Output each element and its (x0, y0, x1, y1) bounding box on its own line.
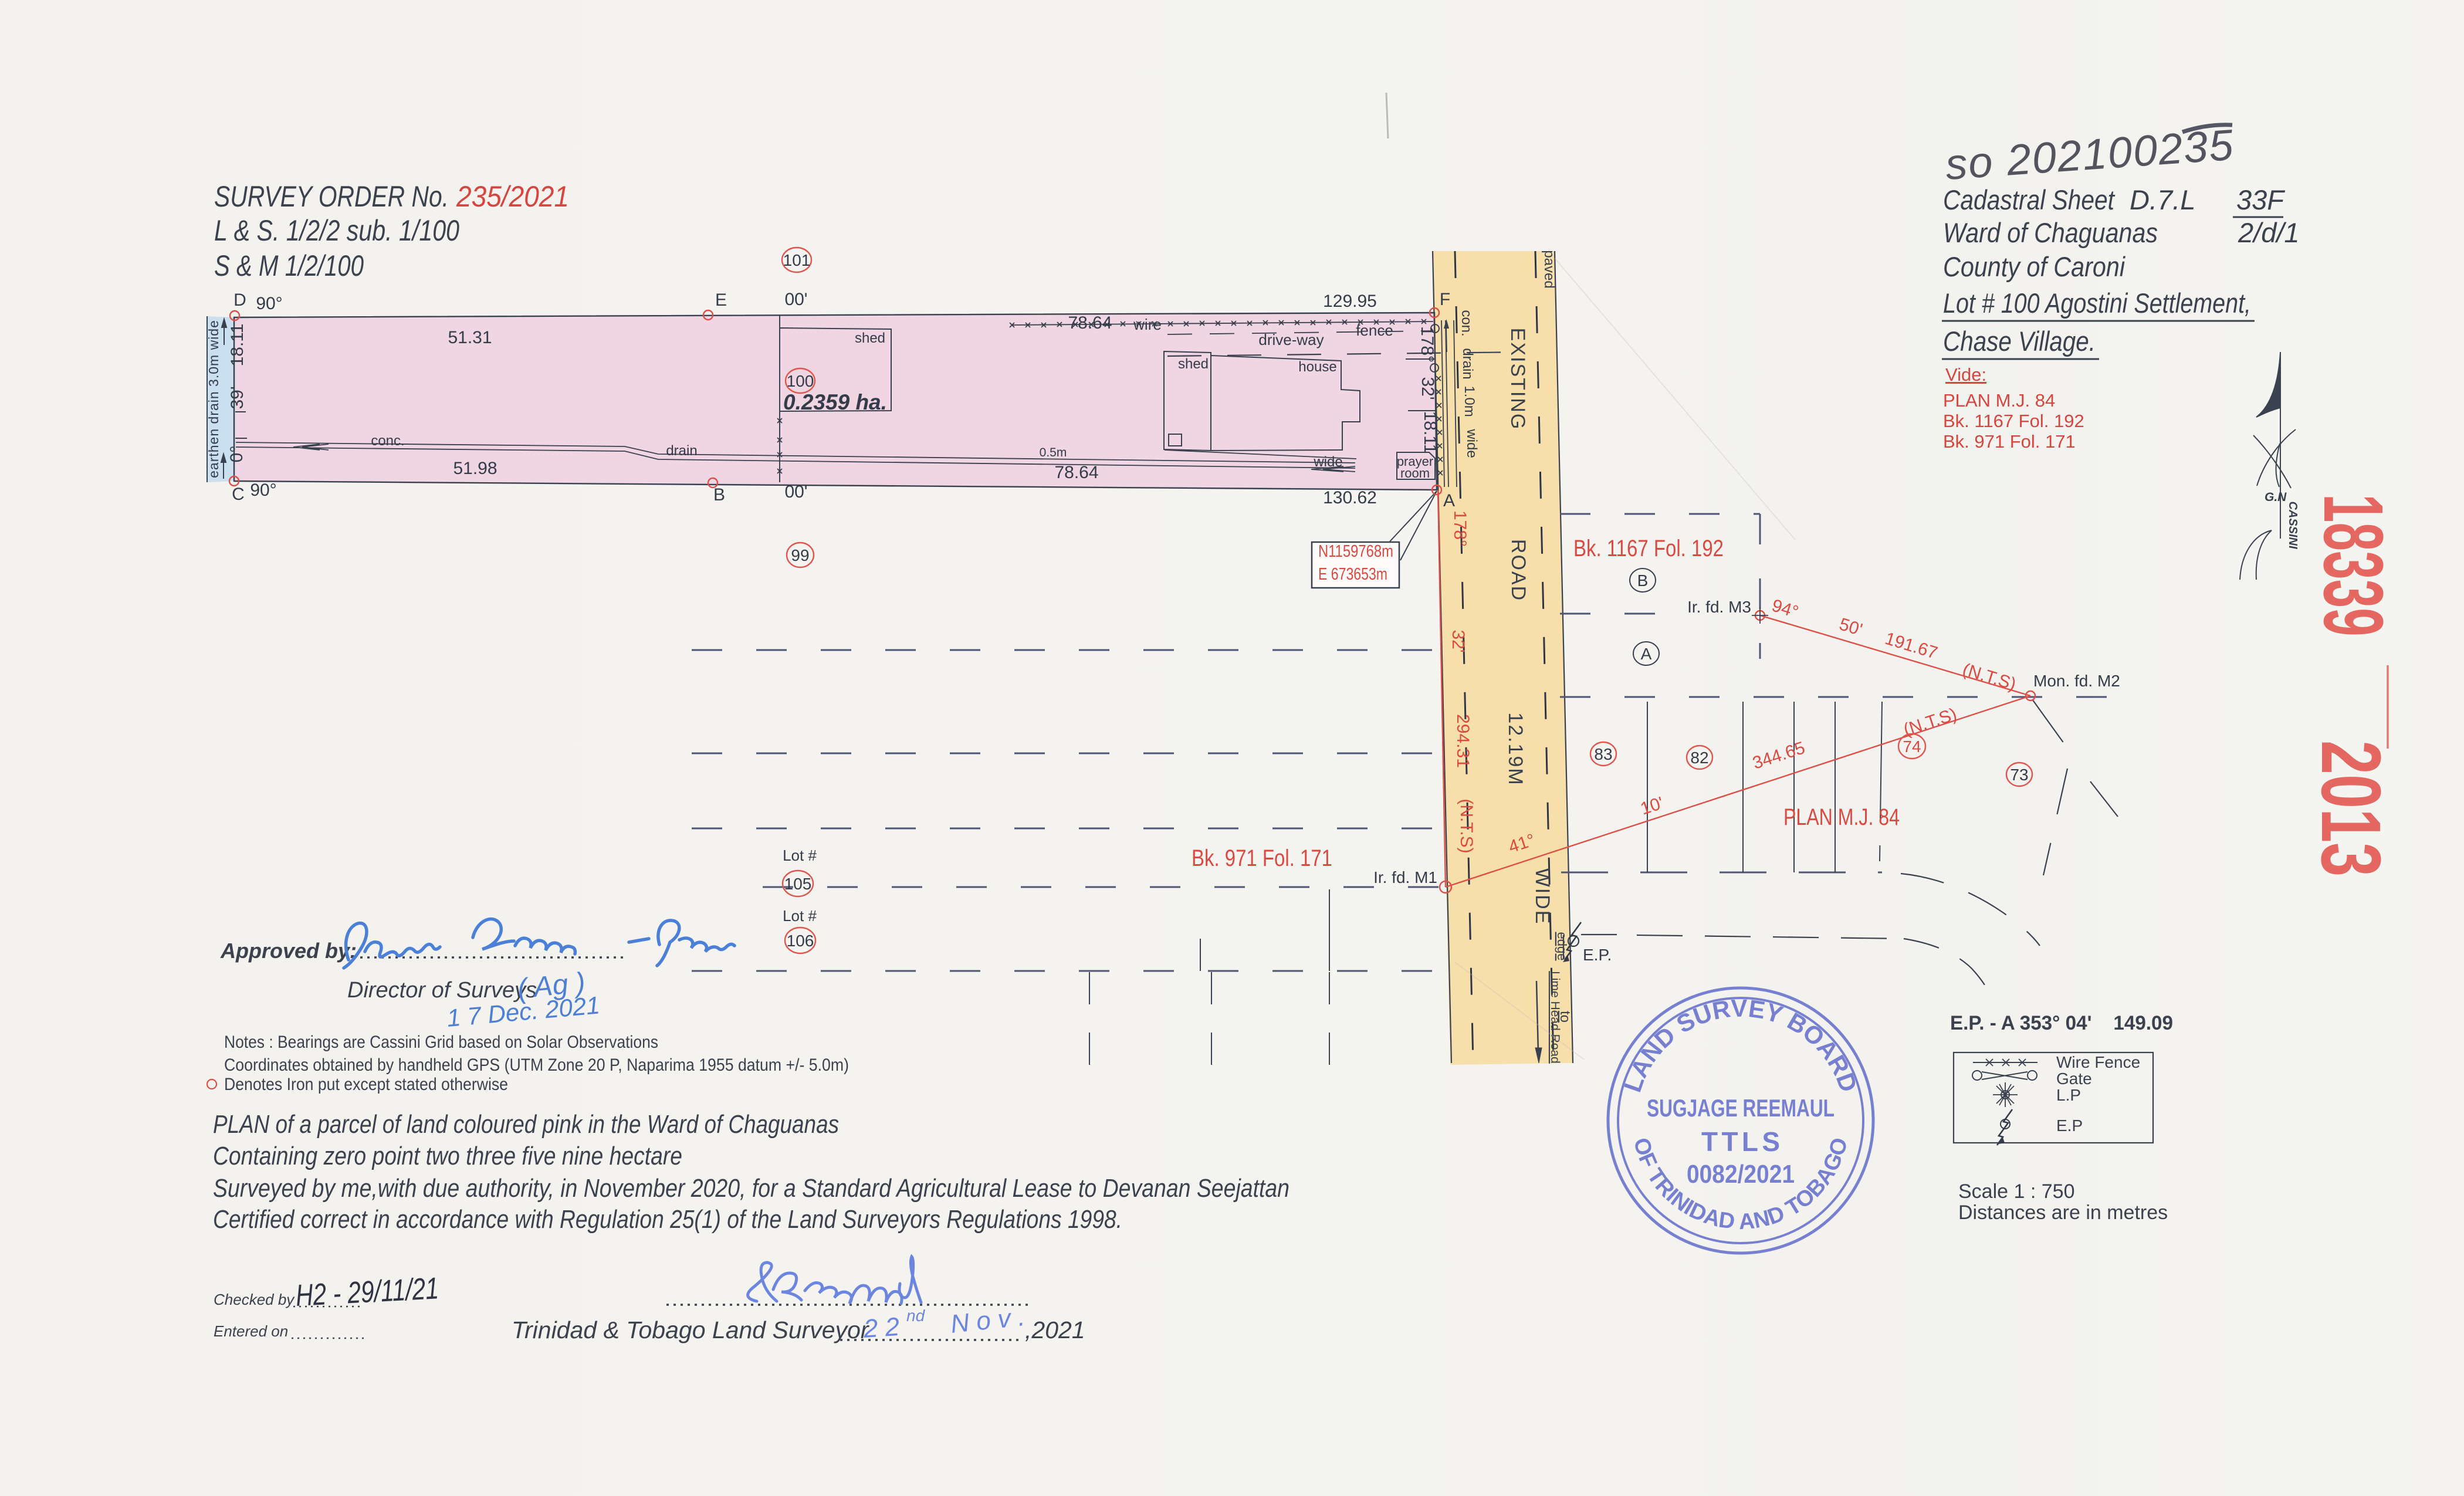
svg-text:51.98: 51.98 (453, 459, 497, 478)
svg-text:A: A (1443, 491, 1455, 510)
svg-text:Lot #: Lot # (783, 847, 817, 864)
svg-text:18339: 18339 (2306, 494, 2401, 637)
svg-text:00': 00' (784, 290, 807, 309)
svg-text:SURVEY ORDER No.: SURVEY ORDER No. (214, 180, 449, 213)
svg-text:Denotes Iron put except stated: Denotes Iron put except stated otherwise (224, 1075, 508, 1094)
svg-text:PLAN M.J. 84: PLAN M.J. 84 (1943, 390, 2055, 411)
svg-text:conc.: conc. (371, 433, 404, 449)
svg-text:paved: paved (1541, 250, 1557, 288)
svg-text:82: 82 (1690, 749, 1708, 767)
svg-text:wide: wide (1464, 428, 1480, 458)
svg-text:Ir. fd. M3: Ir. fd. M3 (1687, 598, 1751, 616)
svg-text:wide: wide (1313, 454, 1342, 470)
svg-text:ROAD: ROAD (1507, 539, 1529, 601)
svg-text:Containing zero point two thre: Containing zero point two three five nin… (213, 1142, 682, 1170)
svg-text:B: B (713, 485, 725, 505)
svg-text:51.31: 51.31 (448, 328, 492, 347)
svg-text:EXISTING: EXISTING (1507, 328, 1529, 431)
svg-text:74: 74 (1903, 737, 1921, 756)
svg-text:90°: 90° (250, 480, 276, 500)
svg-text:F: F (1440, 290, 1450, 309)
svg-text:Bk. 1167 Fol. 192: Bk. 1167 Fol. 192 (1943, 411, 2084, 431)
svg-text:2/d/1: 2/d/1 (2238, 217, 2300, 248)
svg-text:00': 00' (784, 482, 807, 502)
svg-text:room: room (1400, 466, 1430, 480)
svg-text:N1159768m: N1159768m (1318, 542, 1393, 561)
svg-text:D.7.L: D.7.L (2130, 184, 2195, 215)
svg-text:fence: fence (1356, 321, 1393, 339)
svg-text:E: E (715, 290, 727, 310)
svg-text:Entered on: Entered on (214, 1322, 288, 1340)
svg-text:83: 83 (1594, 745, 1612, 763)
svg-text:B: B (1637, 571, 1649, 590)
svg-text:L.P: L.P (2056, 1086, 2081, 1104)
svg-text:Vide:: Vide: (1945, 364, 1986, 385)
svg-text:Wire Fence: Wire Fence (2056, 1053, 2140, 1071)
svg-text:CASSINI: CASSINI (2286, 501, 2299, 549)
svg-text:Bk. 1167 Fol. 192: Bk. 1167 Fol. 192 (1573, 536, 1724, 561)
svg-text:Bk. 971 Fol. 171: Bk. 971 Fol. 171 (1192, 845, 1332, 871)
svg-text:0.5m: 0.5m (1040, 446, 1067, 459)
svg-text:2 2: 2 2 (862, 1312, 900, 1343)
svg-text:Cadastral Sheet: Cadastral Sheet (1943, 184, 2116, 215)
svg-text:S & M 1/2/100: S & M 1/2/100 (214, 249, 364, 282)
svg-text:Gate: Gate (2056, 1069, 2092, 1088)
svg-text:100: 100 (787, 372, 814, 390)
svg-text:Ward of Chaguanas: Ward of Chaguanas (1943, 217, 2158, 248)
svg-text:12.19M: 12.19M (1504, 712, 1527, 786)
svg-text:73: 73 (2010, 766, 2028, 784)
svg-text:SUGJAGE REEMAUL: SUGJAGE REEMAUL (1647, 1094, 1835, 1122)
svg-text:Approved by:: Approved by: (220, 939, 357, 963)
svg-text:294.31: 294.31 (1453, 714, 1473, 768)
svg-text:shed: shed (1178, 356, 1209, 372)
svg-text:0.2359 ha.: 0.2359 ha. (783, 390, 887, 414)
svg-text:E.P.: E.P. (1583, 946, 1612, 964)
svg-text:105: 105 (784, 875, 812, 893)
svg-text:,2021: ,2021 (1025, 1316, 1085, 1343)
svg-text:L & S. 1/2/2 sub. 1/100: L & S. 1/2/2 sub. 1/100 (214, 214, 459, 247)
svg-text:County of Caroni: County of Caroni (1943, 251, 2125, 282)
svg-text:Mon. fd. M2: Mon. fd. M2 (2033, 672, 2120, 690)
svg-text:Chase Village.: Chase Village. (1943, 326, 2096, 357)
svg-text:39': 39' (228, 386, 247, 409)
svg-text:178°: 178° (1450, 510, 1470, 547)
svg-text:E 673653m: E 673653m (1318, 565, 1387, 584)
svg-text:PLAN of a parcel of land colou: PLAN of a parcel of land coloured pink i… (213, 1110, 839, 1139)
svg-text:PLAN M.J. 84: PLAN M.J. 84 (1783, 804, 1900, 830)
svg-text:shed: shed (855, 330, 885, 346)
svg-text:0082/2021: 0082/2021 (1687, 1160, 1795, 1189)
svg-text:Checked by: Checked by (214, 1291, 295, 1308)
svg-text:Lot #: Lot # (783, 907, 817, 925)
svg-text:Lot # 100 Agostini Settlement,: Lot # 100 Agostini Settlement, (1943, 287, 2251, 319)
svg-text:78.64: 78.64 (1068, 313, 1112, 333)
svg-text:2013: 2013 (2304, 740, 2398, 876)
svg-text:0°: 0° (227, 446, 246, 463)
svg-text:earthen drain 3.0m wide: earthen drain 3.0m wide (206, 320, 221, 478)
svg-text:E.P: E.P (2056, 1116, 2083, 1135)
svg-text:drain: drain (666, 443, 697, 459)
svg-text:Surveyed by me,with due author: Surveyed by me,with due authority, in No… (213, 1174, 1289, 1203)
svg-text:Coordinates obtained by handhe: Coordinates obtained by handheld GPS (UT… (224, 1055, 849, 1075)
svg-text:con.: con. (1458, 310, 1474, 336)
svg-text:178°: 178° (1417, 326, 1437, 363)
svg-text:90°: 90° (256, 294, 282, 313)
svg-text:129.95: 129.95 (1323, 292, 1377, 311)
svg-text:32': 32' (1418, 377, 1437, 400)
svg-text:Certified correct in accordanc: Certified correct in accordance with Reg… (213, 1205, 1122, 1234)
svg-text:E.P. - A 353° 04' 149.09: E.P. - A 353° 04' 149.09 (1950, 1012, 2173, 1034)
svg-text:house: house (1298, 359, 1336, 375)
svg-text:Scale 1 : 750: Scale 1 : 750 (1958, 1180, 2074, 1203)
svg-text:32': 32' (1448, 629, 1468, 652)
svg-text:Bk. 971 Fol. 171: Bk. 971 Fol. 171 (1943, 431, 2076, 452)
svg-text:Trinidad & Tobago Land Surveyo: Trinidad & Tobago Land Surveyor (512, 1316, 870, 1343)
svg-text:G.N: G.N (2265, 490, 2287, 504)
svg-text:WIDE: WIDE (1531, 868, 1553, 925)
svg-text:wire: wire (1133, 316, 1162, 333)
svg-text:101: 101 (783, 251, 811, 269)
svg-text:235/2021: 235/2021 (456, 180, 569, 213)
svg-text:(N.T.S): (N.T.S) (1457, 798, 1476, 853)
svg-text:Ir. fd. M1: Ir. fd. M1 (1373, 868, 1437, 886)
svg-text:C: C (232, 485, 245, 504)
svg-text:78.64: 78.64 (1054, 463, 1098, 482)
svg-text:106: 106 (787, 932, 814, 950)
svg-text:D: D (233, 290, 246, 310)
svg-text:33F: 33F (2236, 184, 2285, 215)
svg-text:Distances are in metres: Distances are in metres (1958, 1201, 2168, 1224)
svg-text:nd: nd (906, 1307, 926, 1325)
svg-text:Lime Head Road: Lime Head Road (1548, 971, 1562, 1064)
svg-text:Notes : Bearings are Cassini G: Notes : Bearings are Cassini Grid based … (224, 1033, 658, 1052)
svg-text:18.11: 18.11 (1420, 411, 1440, 454)
svg-text:drive-way: drive-way (1258, 331, 1324, 348)
svg-text:99: 99 (791, 546, 809, 564)
svg-text:18.11: 18.11 (228, 324, 247, 367)
svg-text:A: A (1641, 645, 1652, 663)
svg-text:drain: drain (1460, 348, 1475, 379)
svg-text:1.0m: 1.0m (1461, 385, 1477, 417)
svg-text:130.62: 130.62 (1323, 488, 1377, 507)
